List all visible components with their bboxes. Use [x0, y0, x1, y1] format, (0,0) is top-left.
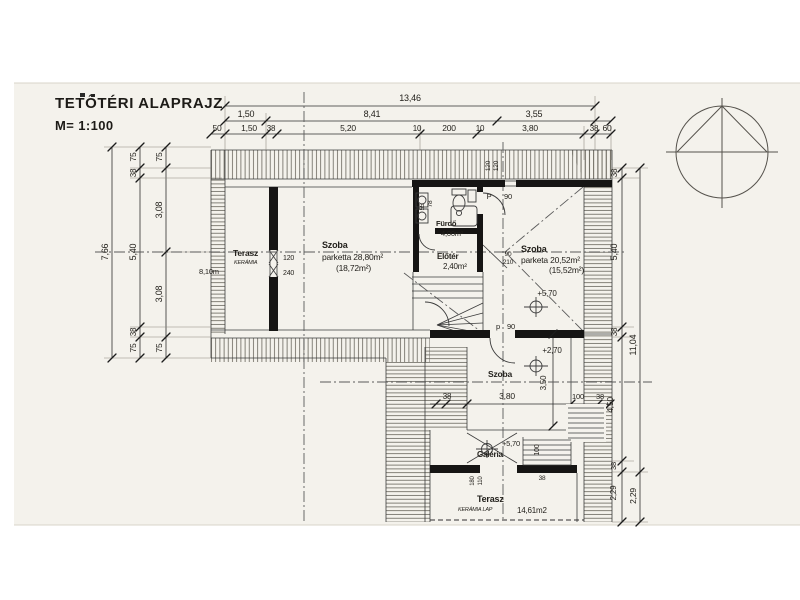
dim-label: 75 [128, 343, 138, 353]
roof-hatch-right [584, 187, 612, 522]
wall [516, 180, 612, 187]
dim-label: 5,40 [128, 243, 138, 260]
dim-label: 11,04 [628, 334, 638, 355]
roof-hatch-lower-left [386, 430, 430, 522]
room-label-szoba-2: Szoba [521, 244, 548, 254]
room-area-label: 4,00m² [441, 229, 464, 238]
drawing-scale: M= 1:100 [55, 118, 113, 133]
wall [430, 330, 490, 338]
dim-label: 3,50 [539, 375, 548, 391]
dim-label: 200 [442, 123, 456, 133]
roof-hatch-lower-left [386, 362, 467, 430]
room-label-terasz-upper: Terasz [233, 248, 258, 258]
wall [477, 214, 483, 272]
wall [477, 187, 483, 192]
room-finish-label: KERÁMIA [234, 259, 258, 266]
room-area-label: 8,10m [199, 267, 219, 276]
dim-label: 7,66 [100, 243, 110, 260]
dim-label: 3,80 [522, 123, 538, 133]
window-label: 120 [485, 160, 492, 171]
dim-label: 60 [602, 123, 612, 133]
dim-label: 38 [129, 168, 138, 177]
window-label: 240 [283, 270, 294, 277]
wall [413, 234, 419, 272]
level-label: +2,70 [542, 346, 562, 355]
dim-label: 10 [476, 124, 485, 133]
room-area-label: (15,52m²) [549, 265, 584, 275]
window-label: 110 [478, 476, 484, 486]
room-area-label: (18,72m²) [336, 263, 371, 273]
dim-label: 38 [129, 327, 138, 336]
dim-label: 75 [128, 152, 138, 162]
dim-label: 38 [610, 168, 619, 177]
dim-label: 75 [154, 152, 164, 162]
roof-hatch-left [211, 179, 225, 334]
level-label: +5,70 [502, 439, 520, 448]
dim-label: 100 [572, 392, 584, 401]
door-label: p [496, 322, 500, 331]
dim-label: 38 [609, 462, 618, 470]
roof-hatch-top [211, 150, 612, 179]
wall [517, 465, 577, 473]
door-label: 210 [503, 259, 514, 266]
dim-label: 2,29 [609, 485, 618, 501]
dim-label: 10 [413, 124, 422, 133]
room-area-label: 2,40m² [443, 262, 467, 271]
window-label: 180 [470, 475, 476, 485]
dim-label: 100 [534, 444, 541, 455]
wall [430, 465, 480, 473]
room-label-szoba-1: Szoba [322, 240, 349, 250]
dim-label: 8,41 [364, 109, 381, 119]
dim-label: 38 [590, 124, 599, 133]
roof-hatch-lower-left [425, 347, 467, 362]
dim-label: 1,50 [241, 123, 257, 133]
floorplan-canvas: TETŐTÉRI ALAPRAJZ M= 1:100 [0, 0, 800, 600]
dim-label: 3,80 [499, 391, 515, 401]
fixture-dim-label: 78 [427, 200, 434, 207]
dim-label: 38 [596, 392, 604, 401]
room-label-galeria: Galéria [477, 450, 503, 459]
wall [412, 180, 505, 187]
window-label: 120 [283, 255, 294, 262]
dim-label: 2,29 [628, 488, 638, 504]
door-label: 90 [507, 322, 515, 331]
room-area-label: 14,61m2 [517, 506, 547, 515]
room-label-szoba-3: Szoba [488, 369, 513, 379]
scanned-floorplan-page: TETŐTÉRI ALAPRAJZ M= 1:100 [0, 0, 800, 600]
dim-label: 3,08 [154, 201, 164, 218]
door-label: P [487, 192, 492, 201]
dim-label: 38 [539, 475, 546, 482]
room-area-label: parketta 28,80m² [322, 252, 383, 262]
drawing-title: TETŐTÉRI ALAPRAJZ [55, 94, 223, 112]
dim-label: 38 [267, 124, 276, 133]
room-label-terasz-lower: Terasz [477, 494, 504, 504]
wall [269, 187, 278, 250]
fixture-dim-label: 55 [419, 203, 426, 210]
dim-label: 5,40 [609, 243, 619, 260]
room-label-eloter: Előtér [437, 252, 459, 261]
door-label: 90 [505, 251, 512, 258]
dim-label: 13,46 [399, 93, 421, 103]
level-label: +5,70 [537, 289, 557, 298]
dim-label: 50 [212, 123, 222, 133]
dim-label: 38 [610, 327, 619, 336]
dim-label: 38 [443, 392, 452, 401]
room-area-label: parketa 20,52m² [521, 255, 580, 265]
dim-label: 3,55 [526, 109, 543, 119]
dim-label: 3,08 [154, 285, 164, 302]
dim-label: 75 [154, 343, 164, 353]
dim-label: 4,50 [605, 397, 615, 413]
room-label-furdo: Fürdő [436, 219, 457, 228]
room-finish-label: KERÁMIA LAP [458, 506, 493, 513]
wall [269, 277, 278, 331]
door-label: 90 [504, 192, 512, 201]
window-label: 120 [493, 160, 500, 171]
dim-label: 1,50 [238, 109, 255, 119]
dim-label: 5,20 [340, 123, 356, 133]
